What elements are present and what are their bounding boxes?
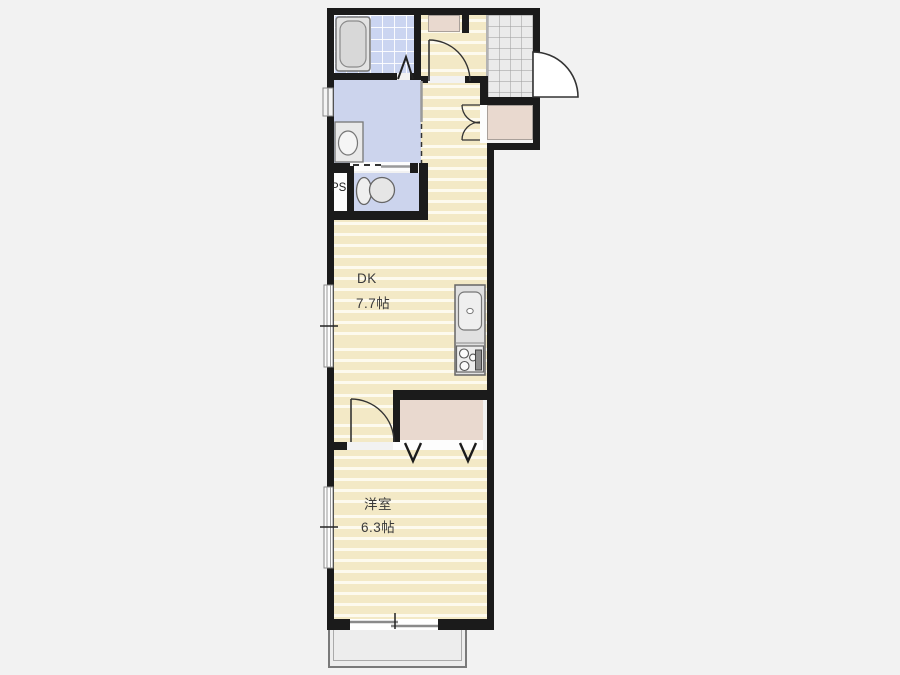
- kitchen-counter-icon: [455, 285, 485, 375]
- western-window-icon: [320, 487, 338, 568]
- dk-window-icon: [320, 285, 338, 367]
- hall-door-icon: [429, 40, 470, 81]
- bathtub-icon: [336, 17, 370, 71]
- washroom-window-icon: [323, 88, 333, 116]
- floor-plan: DK 7.7帖 洋室 6.3帖 PS: [0, 0, 900, 675]
- dk-room-label: DK: [357, 272, 377, 286]
- plan-linework: [0, 0, 900, 675]
- dk-room-size: 7.7帖: [356, 297, 390, 311]
- washbasin-icon: [335, 122, 363, 162]
- western-room-size: 6.3帖: [361, 521, 395, 535]
- western-room-door-icon: [351, 399, 394, 442]
- pipe-space-label: PS: [331, 183, 346, 195]
- toilet-icon: [357, 178, 395, 205]
- shoe-cabinet-doors-icon: [462, 105, 480, 140]
- closet-folding-doors-icon: [405, 443, 476, 461]
- balcony-window-icon: [350, 613, 438, 630]
- bath-folding-door-icon: [398, 57, 413, 79]
- western-room-label: 洋室: [364, 498, 392, 512]
- entrance-door-icon: [533, 52, 578, 97]
